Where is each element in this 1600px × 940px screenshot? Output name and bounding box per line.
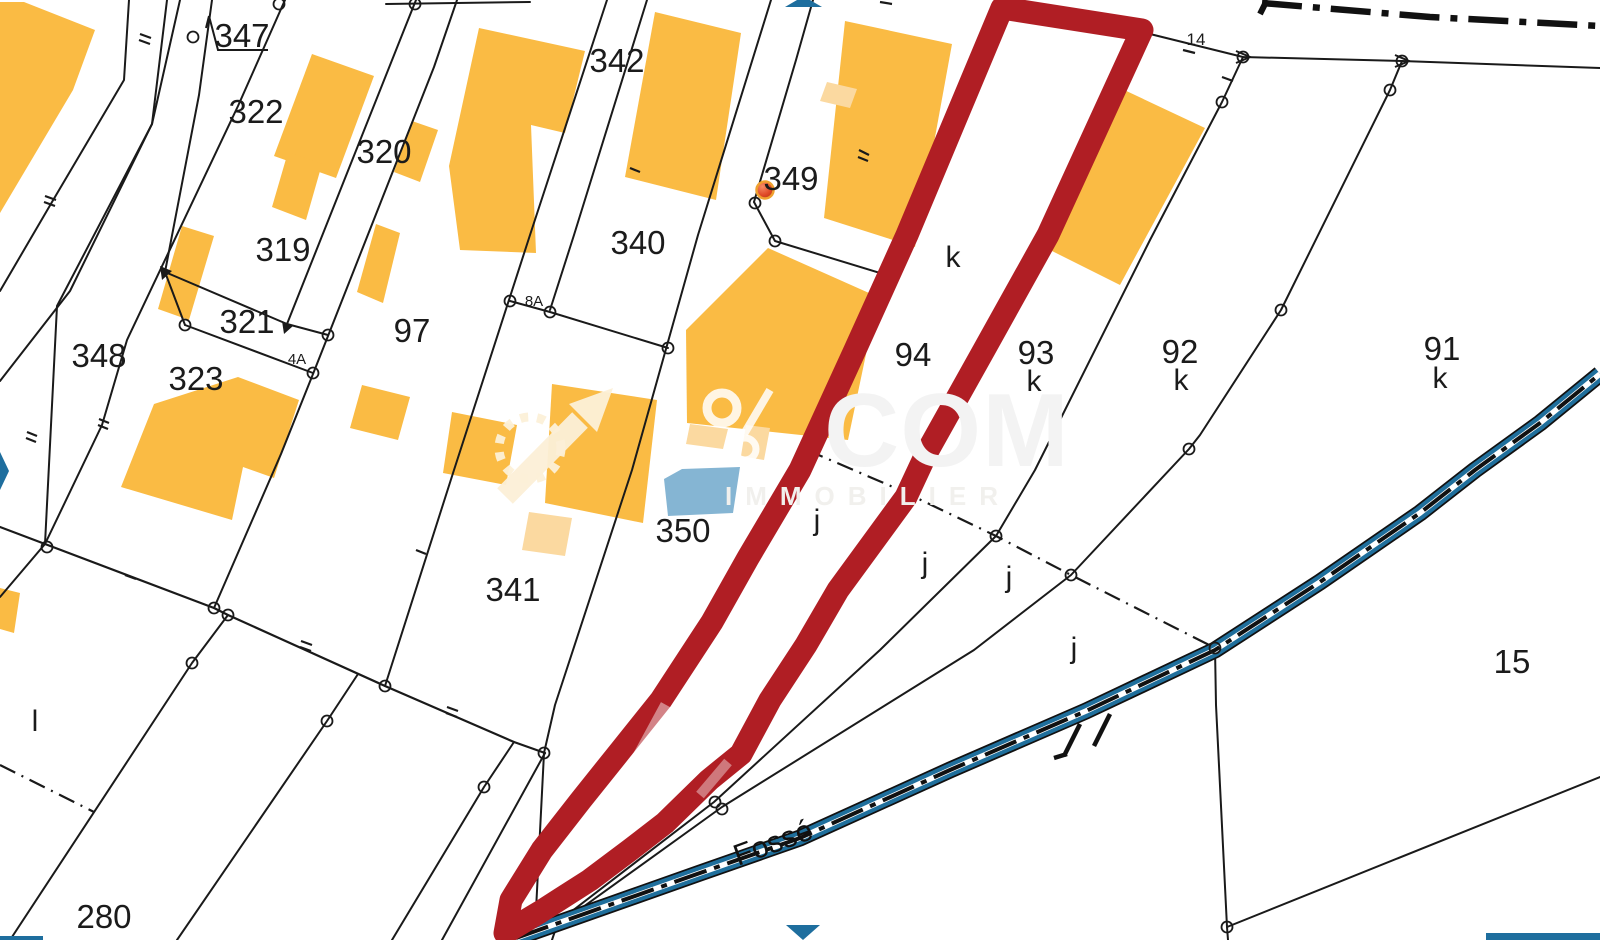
svg-text:94: 94 [895,336,932,373]
svg-text:k: k [1433,362,1449,395]
svg-text:14: 14 [1187,30,1206,49]
svg-text:322: 322 [228,93,283,130]
svg-text:342: 342 [589,42,644,79]
svg-text:323: 323 [168,360,223,397]
svg-text:k: k [946,241,962,274]
svg-text:280: 280 [76,898,131,935]
svg-text:8A: 8A [525,293,543,310]
svg-text:349: 349 [763,160,818,197]
svg-text:15: 15 [1494,643,1531,680]
svg-text:j: j [813,504,821,537]
svg-text:320: 320 [356,133,411,170]
svg-text:341: 341 [485,571,540,608]
svg-text:340: 340 [610,224,665,261]
svg-text:347: 347 [214,17,269,54]
svg-text:j: j [1005,561,1013,594]
svg-text:l: l [32,705,39,738]
svg-text:321: 321 [219,303,274,340]
svg-text:k: k [1027,365,1043,398]
svg-text:319: 319 [255,231,310,268]
svg-text:348: 348 [71,337,126,374]
svg-text:4A: 4A [288,351,306,368]
svg-text:97: 97 [394,312,431,349]
svg-text:j: j [921,547,929,580]
svg-text:350: 350 [655,512,710,549]
svg-text:IMMOBILIER: IMMOBILIER [725,481,1011,511]
svg-text:j: j [1070,632,1078,665]
svg-text:k: k [1174,364,1190,397]
